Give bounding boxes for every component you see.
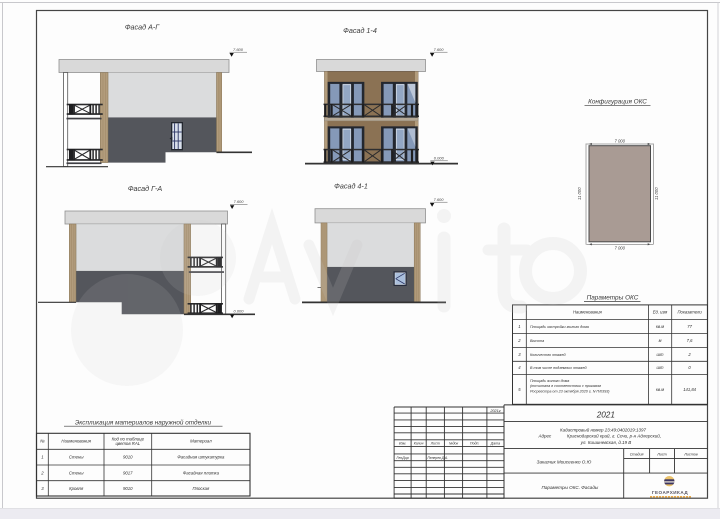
svg-text:11 000: 11 000: [577, 187, 582, 200]
svg-text:7 000: 7 000: [614, 246, 625, 251]
svg-text:0.000: 0.000: [434, 156, 445, 161]
svg-text:Стадия: Стадия: [630, 453, 644, 457]
svg-text:ГЕОАРХИКАД: ГЕОАРХИКАД: [652, 490, 688, 495]
svg-text:Листов: Листов: [683, 453, 698, 457]
svg-text:ул. Кишиневская, д.19 В: ул. Кишиневская, д.19 В: [580, 440, 632, 445]
svg-text:Фасад 4-1: Фасад 4-1: [334, 182, 368, 191]
svg-text:Материал: Материал: [190, 439, 212, 444]
svg-text:9010: 9010: [123, 455, 133, 460]
svg-text:Ед. изм: Ед. изм: [653, 310, 668, 315]
svg-text:Параметры ОКС: Параметры ОКС: [587, 295, 639, 302]
svg-text:Наименования: Наименования: [61, 439, 91, 444]
svg-text:шт: шт: [657, 352, 664, 357]
svg-text:77: 77: [687, 324, 692, 329]
svg-text:Фасад А-Г: Фасад А-Г: [125, 23, 160, 32]
svg-text:Краснодарский край, г. Сочи, р: Краснодарский край, г. Сочи, р-н Адлерск…: [567, 433, 661, 439]
svg-text:Наименования: Наименования: [573, 310, 603, 315]
svg-text:0.000: 0.000: [233, 309, 244, 314]
svg-text:7.600: 7.600: [233, 47, 244, 52]
svg-text:Фасадная плитка: Фасадная плитка: [183, 470, 220, 475]
svg-text:(посчитана в соответствии с пр: (посчитана в соответствии с приказом: [530, 384, 601, 388]
svg-text:Заказчик Моисеенко О.Ю: Заказчик Моисеенко О.Ю: [537, 459, 592, 464]
svg-text:Колич: Колич: [414, 442, 424, 446]
svg-text:Конфигурация ОКС: Конфигурация ОКС: [588, 99, 647, 106]
svg-text:Подп.: Подп.: [470, 442, 479, 446]
svg-text:11 000: 11 000: [654, 187, 659, 200]
svg-text:Пеперев Д.А.: Пеперев Д.А.: [428, 456, 449, 460]
svg-text:м: м: [659, 338, 662, 343]
svg-text:Экспликация материалов наружно: Экспликация материалов наружной отделки: [75, 418, 212, 426]
svg-text:шт: шт: [657, 365, 664, 370]
svg-text:Росреестра от 23 октября 2020: Росреестра от 23 октября 2020 г. N П/039…: [530, 389, 610, 393]
svg-text:Дата: Дата: [490, 442, 500, 446]
svg-text:Фасадная штукатурка: Фасадная штукатурка: [177, 455, 225, 460]
svg-text:7.600: 7.600: [233, 199, 244, 204]
svg-text:9017: 9017: [123, 470, 133, 475]
svg-text:Стены: Стены: [69, 470, 84, 475]
svg-text:кв.м: кв.м: [656, 324, 664, 329]
svg-text:Плоская: Плоская: [193, 486, 210, 491]
svg-text:Лист: Лист: [430, 442, 440, 446]
svg-text:2021: 2021: [596, 410, 615, 419]
svg-text:2021г: 2021г: [489, 409, 500, 413]
svg-text:Фасад Г-А: Фасад Г-А: [128, 184, 163, 193]
svg-text:Изм.: Изм.: [399, 442, 406, 446]
svg-text:№: №: [40, 439, 45, 444]
svg-text:2: 2: [40, 470, 44, 475]
svg-text:7.600: 7.600: [433, 47, 444, 52]
svg-text:7 000: 7 000: [614, 139, 625, 144]
svg-text:ГенДир: ГенДир: [396, 456, 408, 460]
svg-text:141,84: 141,84: [683, 387, 696, 392]
svg-text:Высота: Высота: [530, 339, 544, 343]
svg-text:Площадь застройки жилого дома: Площадь застройки жилого дома: [530, 325, 589, 329]
svg-text:Параметры ОКС. Фасады: Параметры ОКС. Фасады: [542, 485, 599, 490]
svg-text:№док: №док: [449, 442, 459, 446]
svg-text:9010: 9010: [123, 486, 133, 491]
svg-text:цветов RAL: цветов RAL: [115, 441, 140, 446]
svg-text:Стены: Стены: [69, 455, 84, 460]
svg-text:Показатели: Показатели: [678, 310, 703, 315]
svg-text:В том числе подземных этажей: В том числе подземных этажей: [530, 366, 587, 370]
svg-text:Кадастровый номер 23:49:040201: Кадастровый номер 23:49:0402019:1397: [560, 426, 647, 432]
svg-text:кв.м: кв.м: [656, 387, 664, 392]
svg-text:Площадь жилого дома: Площадь жилого дома: [530, 379, 569, 383]
svg-text:Фасад 1-4: Фасад 1-4: [343, 26, 377, 35]
svg-text:Адрес: Адрес: [538, 434, 552, 439]
svg-text:Лист: Лист: [656, 453, 667, 457]
svg-text:Количество этажей: Количество этажей: [530, 353, 566, 357]
svg-text:7.600: 7.600: [433, 197, 444, 202]
svg-text:Кровля: Кровля: [69, 486, 84, 491]
svg-text:1: 1: [518, 324, 520, 329]
svg-text:7,6: 7,6: [687, 338, 693, 343]
